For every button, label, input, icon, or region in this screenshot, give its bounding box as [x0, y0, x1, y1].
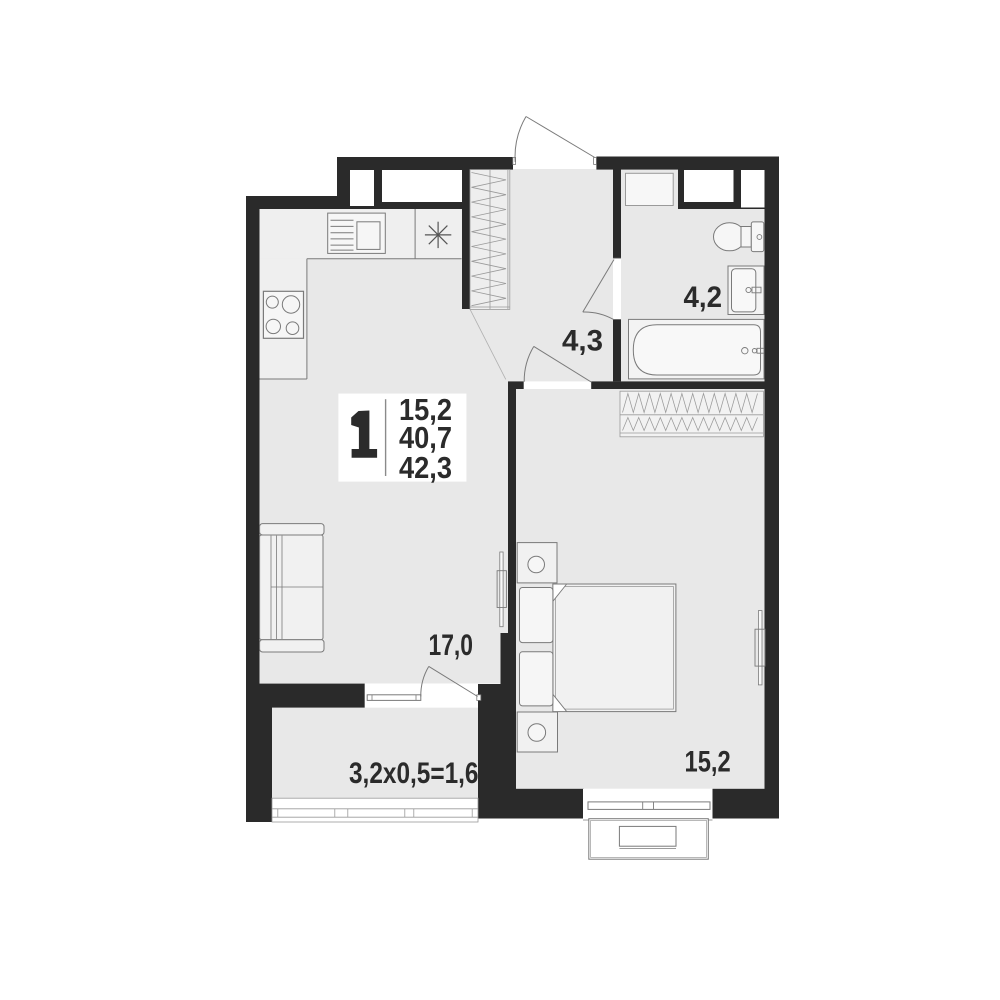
svg-text:4,3: 4,3 [562, 325, 603, 358]
svg-text:15,2: 15,2 [685, 746, 731, 779]
svg-text:4,2: 4,2 [684, 281, 723, 314]
svg-text:42,3: 42,3 [399, 450, 452, 485]
svg-text:3,2x0,5=1,6: 3,2x0,5=1,6 [349, 757, 479, 790]
svg-text:17,0: 17,0 [429, 629, 474, 662]
